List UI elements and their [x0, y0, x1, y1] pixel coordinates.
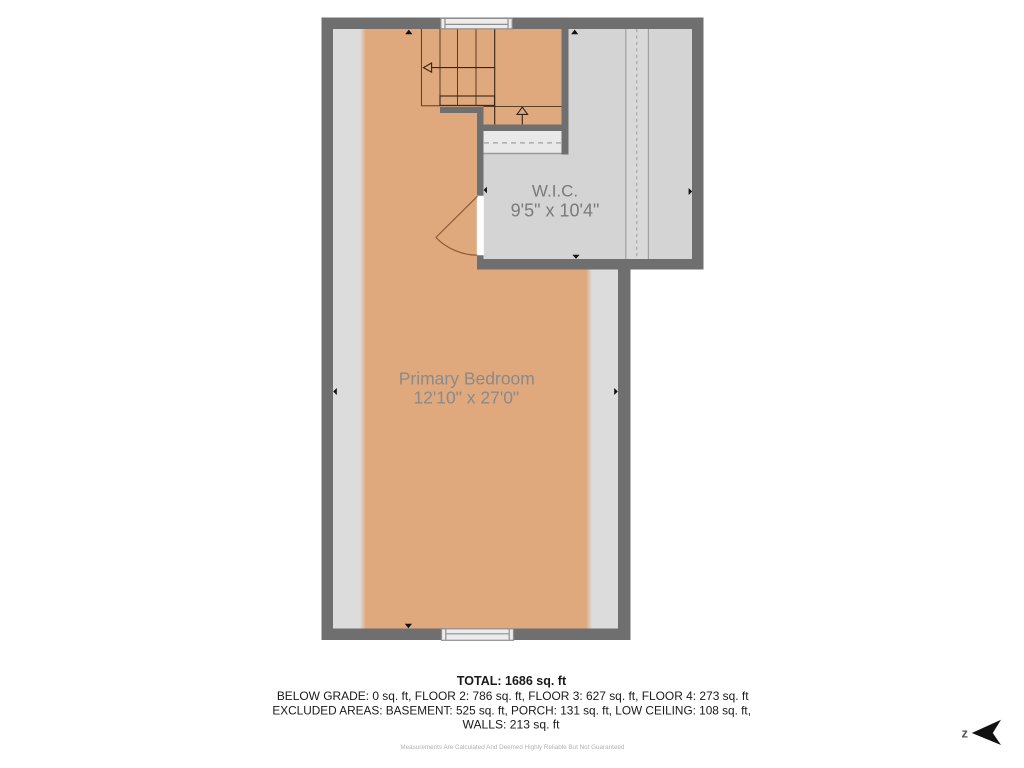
svg-text:Primary Bedroom: Primary Bedroom: [399, 369, 535, 389]
svg-text:TOTAL: 1686 sq. ft: TOTAL: 1686 sq. ft: [457, 674, 567, 688]
svg-text:z: z: [962, 726, 969, 741]
svg-text:12'10" x 27'0": 12'10" x 27'0": [413, 388, 519, 408]
svg-text:Measurements Are Calculated An: Measurements Are Calculated And Deemed H…: [400, 744, 625, 751]
svg-text:BELOW GRADE: 0 sq. ft, FLOOR 2: BELOW GRADE: 0 sq. ft, FLOOR 2: 786 sq. …: [277, 689, 749, 703]
svg-text:W.I.C.: W.I.C.: [532, 182, 578, 201]
svg-text:EXCLUDED AREAS: BASEMENT: 525: EXCLUDED AREAS: BASEMENT: 525 sq. ft, PO…: [272, 703, 751, 717]
svg-text:9'5" x 10'4": 9'5" x 10'4": [511, 201, 600, 221]
svg-text:WALLS: 213 sq. ft: WALLS: 213 sq. ft: [462, 717, 560, 731]
